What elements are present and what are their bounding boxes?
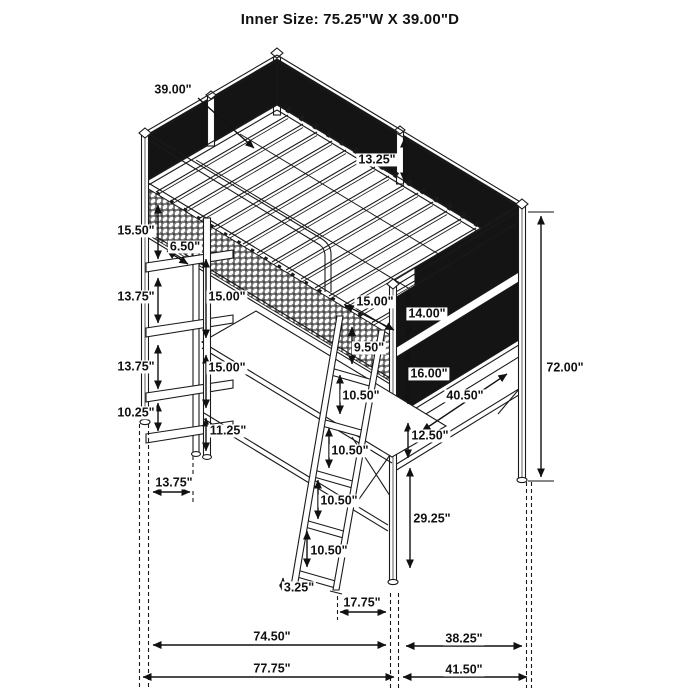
dim-label-shelf-unit-depth: 13.75" [153,476,194,489]
ladder-rung [305,520,347,539]
dim-label-overall-height: 72.00" [544,361,585,374]
dim-label-shelf-gap-2: 13.75" [115,290,156,303]
dim-label-shelf-depth: 6.50" [168,240,202,253]
dim-label-inner-depth: 39.00" [152,83,193,96]
ladder-rung [314,470,356,489]
dim-label-shelf-gap-4: 10.25" [115,406,156,419]
dim-label-ladder-rung-gap-2: 10.50" [329,444,370,457]
corner-brace [498,388,520,414]
dim-label-ladder-rung-gap-4: 10.50" [308,544,349,557]
dim-label-ladder-opening: 15.00" [354,295,395,308]
dim-label-right-panel-upper: 14.00" [406,307,447,320]
dim-label-desk-clearance-upper: 15.00" [206,290,247,303]
loft-bed-dimension-diagram: Inner Size: 75.25"W X 39.00"D 39.00"13.2… [0,0,700,700]
dim-label-floor-depth-inner: 38.25" [443,632,484,645]
dim-label-shelf-gap-3: 13.75" [115,360,156,373]
dim-label-ladder-foot: 3.25" [282,581,316,594]
dim-label-ladder-rung-gap-1: 10.50" [340,389,381,402]
post-cap [271,48,283,58]
dim-label-floor-width-inner: 74.50" [251,630,292,643]
dim-label-ladder-bottom-offset: 17.75" [341,596,382,609]
dim-label-floor-width-outer: 77.75" [251,662,292,675]
diagram-title: Inner Size: 75.25"W X 39.00"D [0,11,700,28]
dim-label-floor-depth-outer: 41.50" [443,663,484,676]
dim-label-guardrail-height: 13.25" [356,153,397,166]
dim-label-right-panel-lower: 16.00" [408,367,449,380]
dim-label-right-leg-height: 29.25" [411,512,452,525]
dim-label-shelf-gap-1: 15.50" [115,224,156,237]
shelf-board [146,380,233,402]
dim-label-ladder-rung-gap-3: 10.50" [318,494,359,507]
dim-label-ladder-top-gap: 9.50" [352,341,386,354]
dim-label-right-desk-length: 40.50" [444,389,485,402]
dim-label-desk-clearance-lower: 15.00" [206,361,247,374]
dim-label-desk-to-shelf: 12.50" [409,429,450,442]
dim-label-desk-leg-height: 11.25" [208,424,249,437]
